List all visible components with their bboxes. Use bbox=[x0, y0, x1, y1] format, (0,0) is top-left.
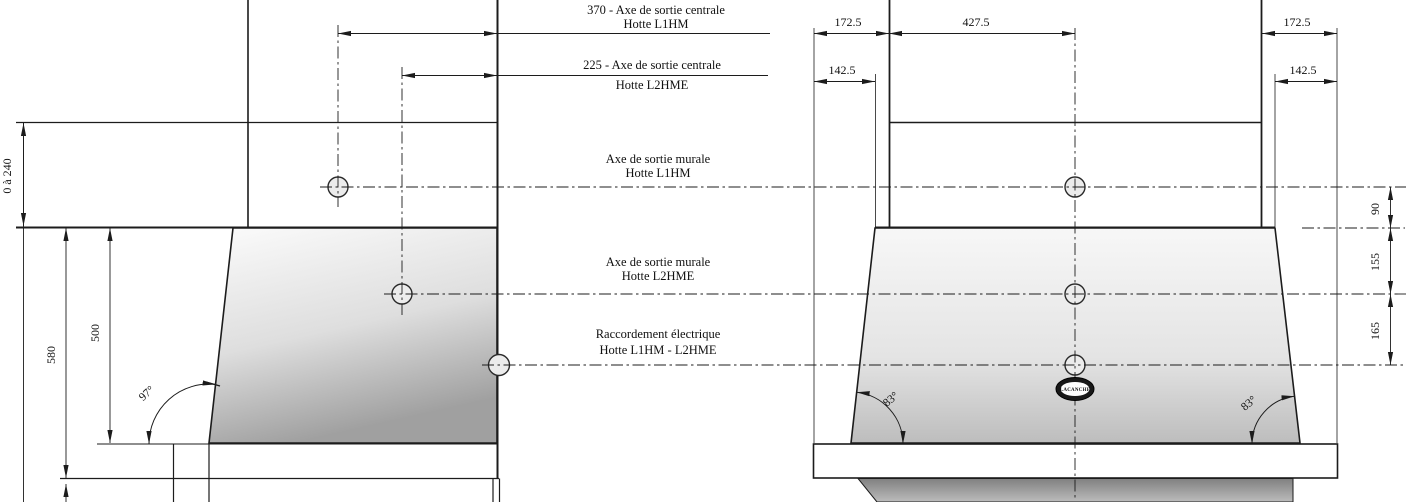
dim-mid-right-label: 142.5 bbox=[1290, 63, 1317, 77]
technical-drawing-page: LACANCHE 0 à 240 500 580 97° 370 - Axe d… bbox=[0, 0, 1411, 502]
dim-500-label: 500 bbox=[88, 324, 102, 342]
callout-370-line2: Hotte L1HM bbox=[624, 17, 689, 31]
callout-murale1-line1: Axe de sortie murale bbox=[606, 152, 711, 166]
callout-murale1-line2: Hotte L1HM bbox=[626, 166, 691, 180]
dim-580-label: 580 bbox=[44, 346, 58, 364]
dim-top-right-label: 172.5 bbox=[1284, 15, 1311, 29]
dim-mid-left-label: 142.5 bbox=[829, 63, 856, 77]
angle-97-label: 97° bbox=[137, 384, 157, 404]
callout-225-line2: Hotte L2HME bbox=[616, 78, 689, 92]
hood-dimension-drawing: LACANCHE 0 à 240 500 580 97° 370 - Axe d… bbox=[0, 0, 1411, 502]
dim-90-label: 90 bbox=[1368, 203, 1382, 215]
front-view-outline bbox=[814, 0, 1338, 502]
dim-top-left-label: 172.5 bbox=[835, 15, 862, 29]
dim-adjustable-height-label: 0 à 240 bbox=[0, 158, 14, 193]
angle-arc-97 bbox=[149, 384, 216, 444]
badge-text: LACANCHE bbox=[1060, 388, 1091, 393]
callout-murale2-line1: Axe de sortie murale bbox=[606, 255, 711, 269]
under-body-front bbox=[858, 479, 1293, 502]
canopy-glass-front bbox=[851, 228, 1300, 443]
dim-155-label: 155 bbox=[1368, 253, 1382, 271]
dim-165-label: 165 bbox=[1368, 322, 1382, 340]
bottom-frame-front bbox=[814, 444, 1338, 478]
canopy-glass-side bbox=[209, 228, 497, 443]
callout-225-line1: 225 - Axe de sortie centrale bbox=[583, 58, 721, 72]
callout-racc-line1: Raccordement électrique bbox=[596, 327, 721, 341]
callout-370-line1: 370 - Axe de sortie centrale bbox=[587, 3, 725, 17]
dim-top-center-label: 427.5 bbox=[963, 15, 990, 29]
brand-badge: LACANCHE bbox=[1056, 378, 1094, 401]
side-view-dimensions: 0 à 240 500 580 97° bbox=[0, 123, 220, 502]
callout-racc-line2: Hotte L1HM - L2HME bbox=[600, 343, 717, 357]
callout-murale2-line2: Hotte L2HME bbox=[622, 269, 695, 283]
